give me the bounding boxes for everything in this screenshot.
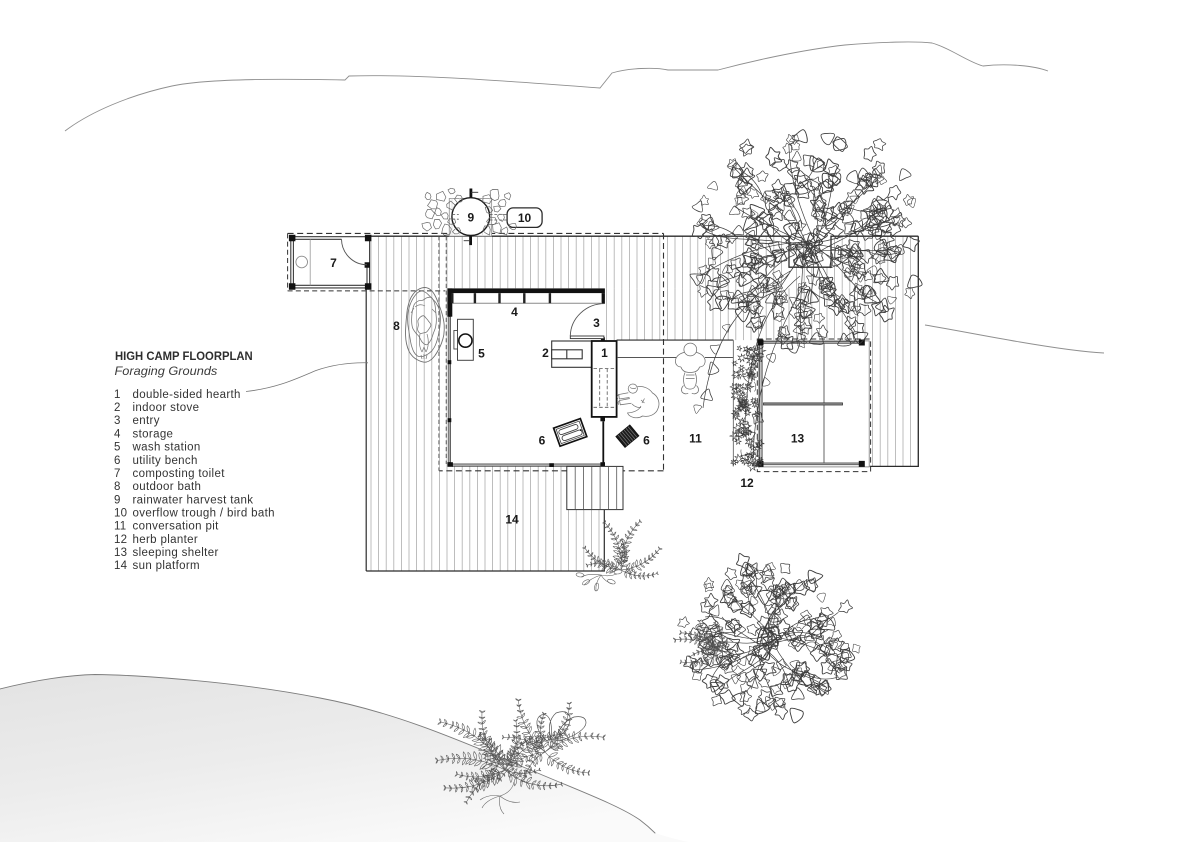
svg-text:6: 6 (643, 434, 650, 448)
svg-text:8: 8 (114, 481, 121, 493)
svg-text:4: 4 (114, 428, 121, 440)
svg-text:14: 14 (114, 560, 128, 572)
svg-text:7: 7 (330, 256, 337, 270)
svg-text:12: 12 (114, 534, 127, 546)
svg-text:12: 12 (740, 476, 754, 490)
svg-text:11: 11 (114, 521, 126, 533)
svg-text:overflow trough / bird bath: overflow trough / bird bath (133, 507, 275, 519)
svg-text:2: 2 (542, 346, 549, 360)
svg-text:13: 13 (114, 547, 127, 559)
svg-text:conversation pit: conversation pit (133, 521, 220, 533)
svg-text:1: 1 (601, 346, 608, 360)
svg-text:double-sided hearth: double-sided hearth (133, 389, 241, 401)
svg-text:outdoor bath: outdoor bath (133, 481, 202, 493)
svg-text:1: 1 (114, 389, 121, 401)
svg-text:composting toilet: composting toilet (133, 468, 226, 480)
svg-text:indoor stove: indoor stove (133, 402, 200, 414)
svg-text:3: 3 (114, 415, 121, 427)
svg-text:rainwater harvest tank: rainwater harvest tank (133, 494, 254, 506)
svg-text:10: 10 (114, 507, 127, 519)
svg-text:14: 14 (505, 513, 519, 527)
svg-text:storage: storage (133, 428, 174, 440)
svg-text:herb planter: herb planter (133, 534, 199, 546)
svg-text:3: 3 (593, 316, 600, 330)
svg-text:HIGH CAMP FLOORPLAN: HIGH CAMP FLOORPLAN (115, 349, 253, 363)
svg-text:utility bench: utility bench (133, 455, 198, 467)
svg-text:sleeping shelter: sleeping shelter (133, 547, 219, 559)
svg-text:9: 9 (467, 211, 474, 225)
svg-text:wash station: wash station (132, 442, 201, 454)
svg-text:9: 9 (114, 494, 121, 506)
svg-text:4: 4 (511, 305, 518, 319)
svg-text:11: 11 (689, 432, 702, 446)
svg-text:2: 2 (114, 402, 121, 414)
svg-text:6: 6 (539, 434, 546, 448)
svg-text:7: 7 (114, 468, 121, 480)
svg-text:13: 13 (791, 432, 805, 446)
svg-text:sun platform: sun platform (133, 560, 200, 572)
svg-text:5: 5 (478, 347, 485, 361)
svg-text:8: 8 (393, 319, 400, 333)
svg-text:Foraging Grounds: Foraging Grounds (115, 364, 218, 378)
svg-text:entry: entry (133, 415, 160, 427)
svg-text:10: 10 (518, 211, 532, 225)
svg-text:6: 6 (114, 455, 121, 467)
svg-text:5: 5 (114, 442, 121, 454)
